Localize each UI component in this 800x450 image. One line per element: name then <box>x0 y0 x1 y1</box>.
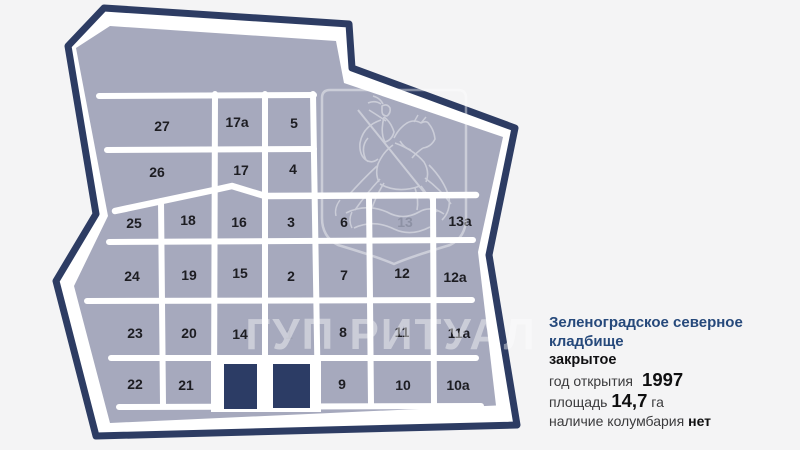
svg-text:12: 12 <box>394 265 410 281</box>
svg-text:19: 19 <box>181 267 197 283</box>
svg-text:10: 10 <box>395 377 411 393</box>
svg-text:9: 9 <box>338 376 346 392</box>
svg-text:2: 2 <box>287 268 295 284</box>
svg-text:26: 26 <box>149 164 165 180</box>
svg-text:24: 24 <box>124 268 140 284</box>
svg-text:5: 5 <box>290 115 298 131</box>
svg-text:23: 23 <box>127 325 143 341</box>
svg-text:12а: 12а <box>443 269 467 285</box>
svg-text:3: 3 <box>287 214 295 230</box>
svg-text:7: 7 <box>340 267 348 283</box>
svg-text:27: 27 <box>154 118 170 134</box>
svg-text:20: 20 <box>181 325 197 341</box>
svg-text:6: 6 <box>340 214 348 230</box>
svg-text:21: 21 <box>178 377 194 393</box>
svg-text:15: 15 <box>232 265 248 281</box>
svg-text:13а: 13а <box>448 213 472 229</box>
svg-text:17а: 17а <box>225 114 249 130</box>
svg-text:ГУП РИТУАЛ: ГУП РИТУАЛ <box>245 310 536 359</box>
svg-text:25: 25 <box>126 215 142 231</box>
svg-text:17: 17 <box>233 162 249 178</box>
svg-text:18: 18 <box>180 212 196 228</box>
svg-text:16: 16 <box>231 214 247 230</box>
svg-text:22: 22 <box>127 376 143 392</box>
svg-text:4: 4 <box>289 161 297 177</box>
svg-text:10а: 10а <box>446 377 470 393</box>
